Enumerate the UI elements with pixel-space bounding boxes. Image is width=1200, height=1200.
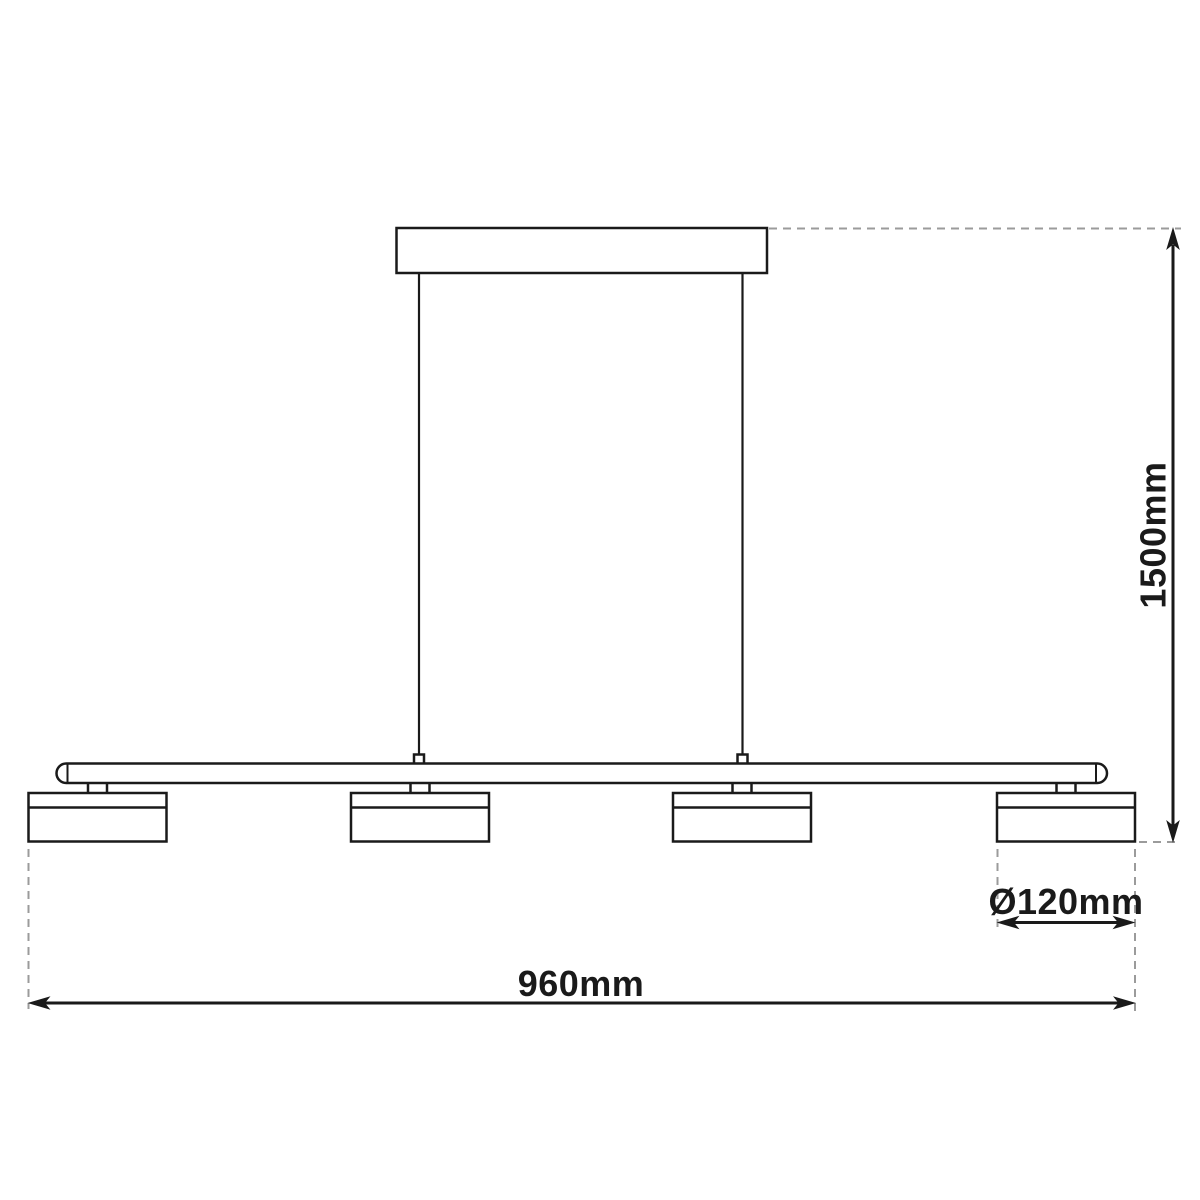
diameter-dimension-label: Ø120mm: [988, 881, 1143, 922]
lamp-body: [997, 793, 1135, 842]
drawing-page: 1500mm 960mm Ø120mm: [0, 0, 1200, 1200]
lamp-head-3: [673, 793, 811, 842]
lamp-head-1: [29, 793, 167, 842]
lamp-body: [29, 793, 167, 842]
lamp-head-2: [351, 793, 489, 842]
lamp-head-4: [997, 793, 1135, 842]
technical-drawing-canvas: 1500mm 960mm Ø120mm: [0, 0, 1200, 1200]
ceiling-canopy: [397, 228, 768, 273]
lamp-body: [351, 793, 489, 842]
width-dimension-label: 960mm: [518, 963, 645, 1004]
height-dimension-label: 1500mm: [1133, 461, 1174, 608]
lamp-body: [673, 793, 811, 842]
horizontal-bar: [57, 764, 1108, 784]
fixture-geometry: [29, 228, 1136, 842]
